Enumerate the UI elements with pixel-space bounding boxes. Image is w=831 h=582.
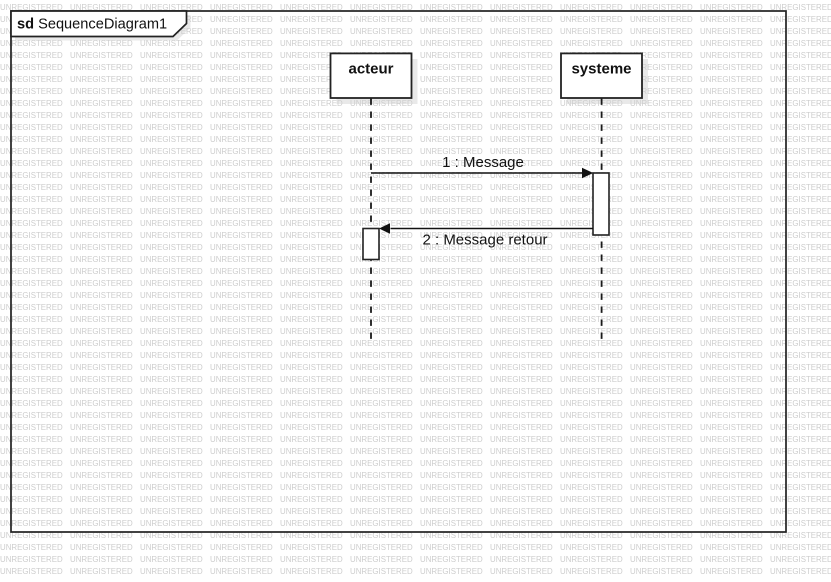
svg-text:1 : Message: 1 : Message: [442, 154, 524, 171]
svg-text:sd SequenceDiagram1: sd SequenceDiagram1: [17, 17, 167, 33]
svg-text:systeme: systeme: [571, 61, 631, 78]
svg-text:2 : Message retour: 2 : Message retour: [422, 232, 547, 249]
svg-text:acteur: acteur: [348, 61, 393, 78]
